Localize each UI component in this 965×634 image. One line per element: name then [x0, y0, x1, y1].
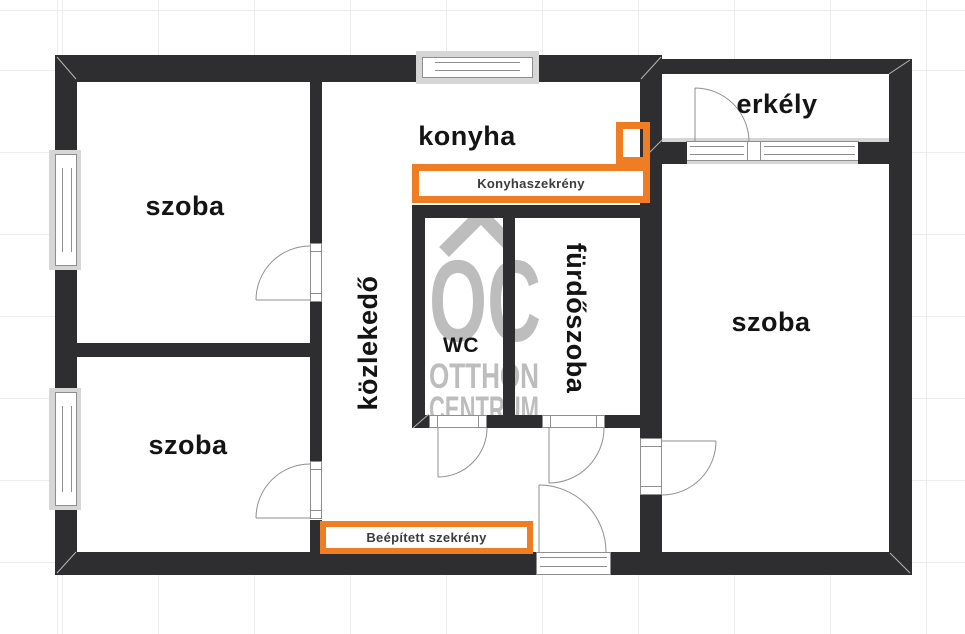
kitchen-cabinet-box: Konyhaszekrény [412, 164, 650, 203]
wall-wc-bath-divider [503, 218, 515, 428]
wall-szoba-divider [55, 343, 310, 357]
kitchen-cabinet-end-box [616, 122, 650, 164]
room-label-furdoszoba: fürdőszoba [558, 218, 592, 418]
room-label-szoba-top-left: szoba [120, 190, 250, 222]
room-label-erkely: erkély [712, 88, 842, 120]
entrance-threshold [536, 552, 611, 575]
balcony-window-pane [760, 141, 859, 161]
wall-top [55, 55, 662, 82]
balcony-door-pane [686, 141, 748, 161]
window-kitchen-top [416, 51, 539, 84]
wall-main-divider-upper [640, 55, 662, 438]
balcony-stub-left [662, 142, 687, 164]
window-left-lower [49, 388, 81, 510]
wall-main-divider-lower [640, 495, 662, 552]
room-label-wc: WC [431, 334, 491, 358]
kitchen-cabinet-label: Konyhaszekrény [477, 176, 585, 191]
wall-kitchen-block-top [412, 205, 662, 218]
floorplan-canvas: OC OTTHON CENTRUM [0, 0, 965, 634]
built-in-wardrobe-box: Beépített szekrény [320, 521, 533, 554]
window-left-upper [49, 150, 81, 270]
room-label-szoba-bottom-left: szoba [123, 429, 253, 461]
balcony-window-mullion [747, 141, 761, 161]
wall-balcony-top [655, 59, 912, 74]
room-label-kozlekedo: közlekedő [352, 243, 386, 443]
wall-bottom [55, 552, 912, 575]
room-label-szoba-right: szoba [706, 306, 836, 338]
balcony-stub-right [858, 142, 889, 164]
wall-left-upper [55, 55, 77, 152]
wall-left-lower [55, 508, 77, 575]
wall-left-middle [55, 268, 77, 390]
wall-corridor-middle [310, 302, 322, 461]
wall-wet-bottom-b [486, 415, 543, 428]
wall-corridor-upper [310, 80, 322, 243]
built-in-wardrobe-label: Beépített szekrény [366, 530, 486, 545]
wall-right [889, 59, 912, 575]
balcony-window-band [662, 138, 889, 164]
wall-wet-bottom-a [412, 415, 430, 428]
wall-wc-left [412, 205, 425, 428]
room-label-konyha: konyha [402, 120, 532, 152]
